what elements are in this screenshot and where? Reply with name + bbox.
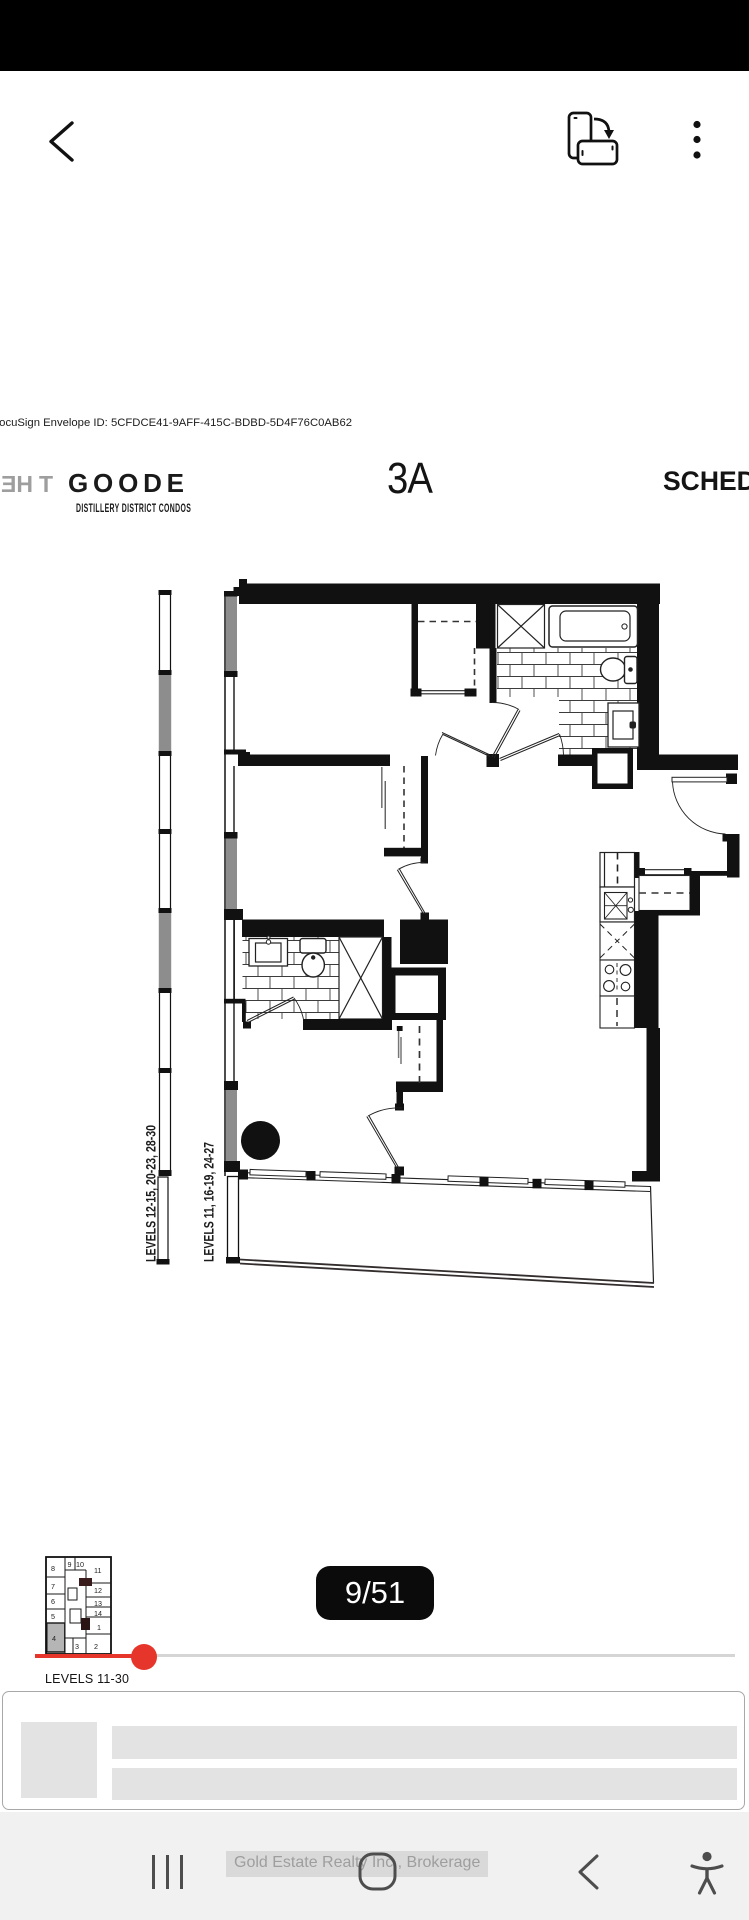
- svg-text:LEVELS 12-15, 20-23, 28-30: LEVELS 12-15, 20-23, 28-30: [144, 1125, 159, 1262]
- svg-text:11: 11: [94, 1566, 101, 1575]
- svg-text:10: 10: [76, 1560, 84, 1569]
- svg-text:8: 8: [51, 1564, 55, 1573]
- svg-text:7: 7: [51, 1582, 55, 1591]
- svg-text:6: 6: [51, 1597, 55, 1606]
- svg-text:3: 3: [75, 1642, 79, 1651]
- svg-text:12: 12: [94, 1586, 102, 1595]
- svg-text:9: 9: [68, 1560, 72, 1569]
- svg-text:2: 2: [94, 1642, 98, 1651]
- svg-text:14: 14: [94, 1609, 102, 1618]
- svg-text:5: 5: [51, 1612, 55, 1621]
- svg-text:1: 1: [97, 1623, 101, 1632]
- svg-text:13: 13: [94, 1599, 102, 1608]
- svg-text:4: 4: [52, 1634, 56, 1643]
- svg-text:LEVELS 11, 16-19, 24-27: LEVELS 11, 16-19, 24-27: [202, 1142, 217, 1262]
